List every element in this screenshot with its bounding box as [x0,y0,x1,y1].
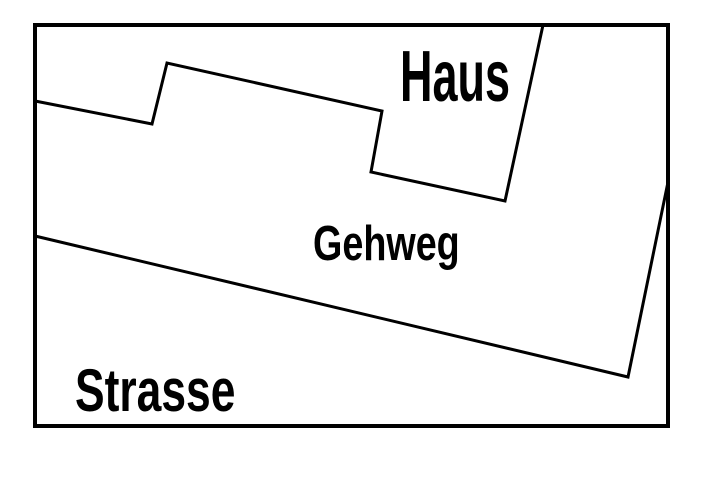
sidewalk-label: Gehweg [313,216,460,271]
diagram-canvas: Haus Gehweg Strasse [0,0,721,480]
sidewalk-schematic-diagram: Haus Gehweg Strasse [0,0,721,480]
house-label: Haus [400,36,510,116]
street-label: Strasse [75,358,235,425]
street-boundary-line [35,182,668,377]
